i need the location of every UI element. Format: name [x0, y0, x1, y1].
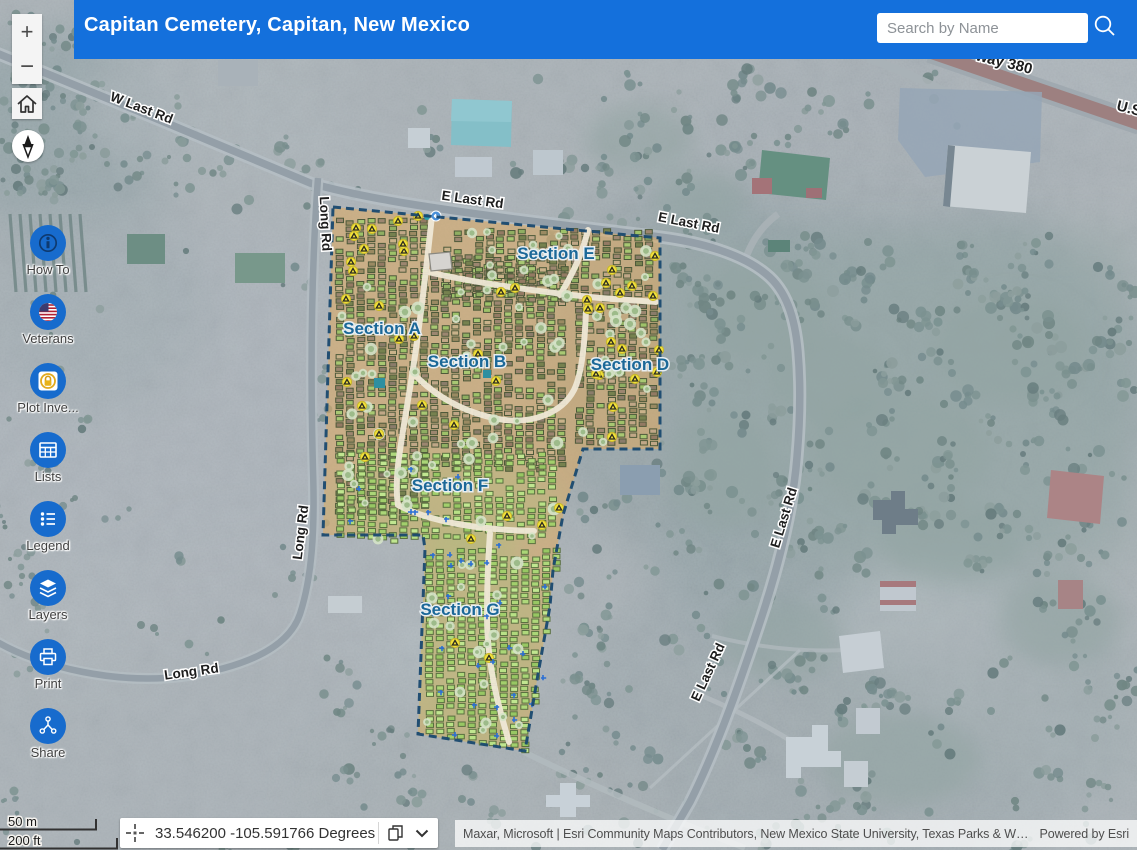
svg-text:Section A: Section A: [343, 319, 421, 338]
svg-text:Section E: Section E: [517, 244, 594, 263]
svg-text:Long Rd: Long Rd: [317, 196, 335, 251]
svg-text:Section D: Section D: [591, 355, 669, 374]
svg-text:Section B: Section B: [428, 352, 506, 371]
svg-text:Section G: Section G: [420, 600, 499, 619]
svg-text:50 m: 50 m: [8, 814, 37, 829]
svg-text:200 ft: 200 ft: [8, 833, 41, 848]
svg-text:Section F: Section F: [412, 476, 489, 495]
